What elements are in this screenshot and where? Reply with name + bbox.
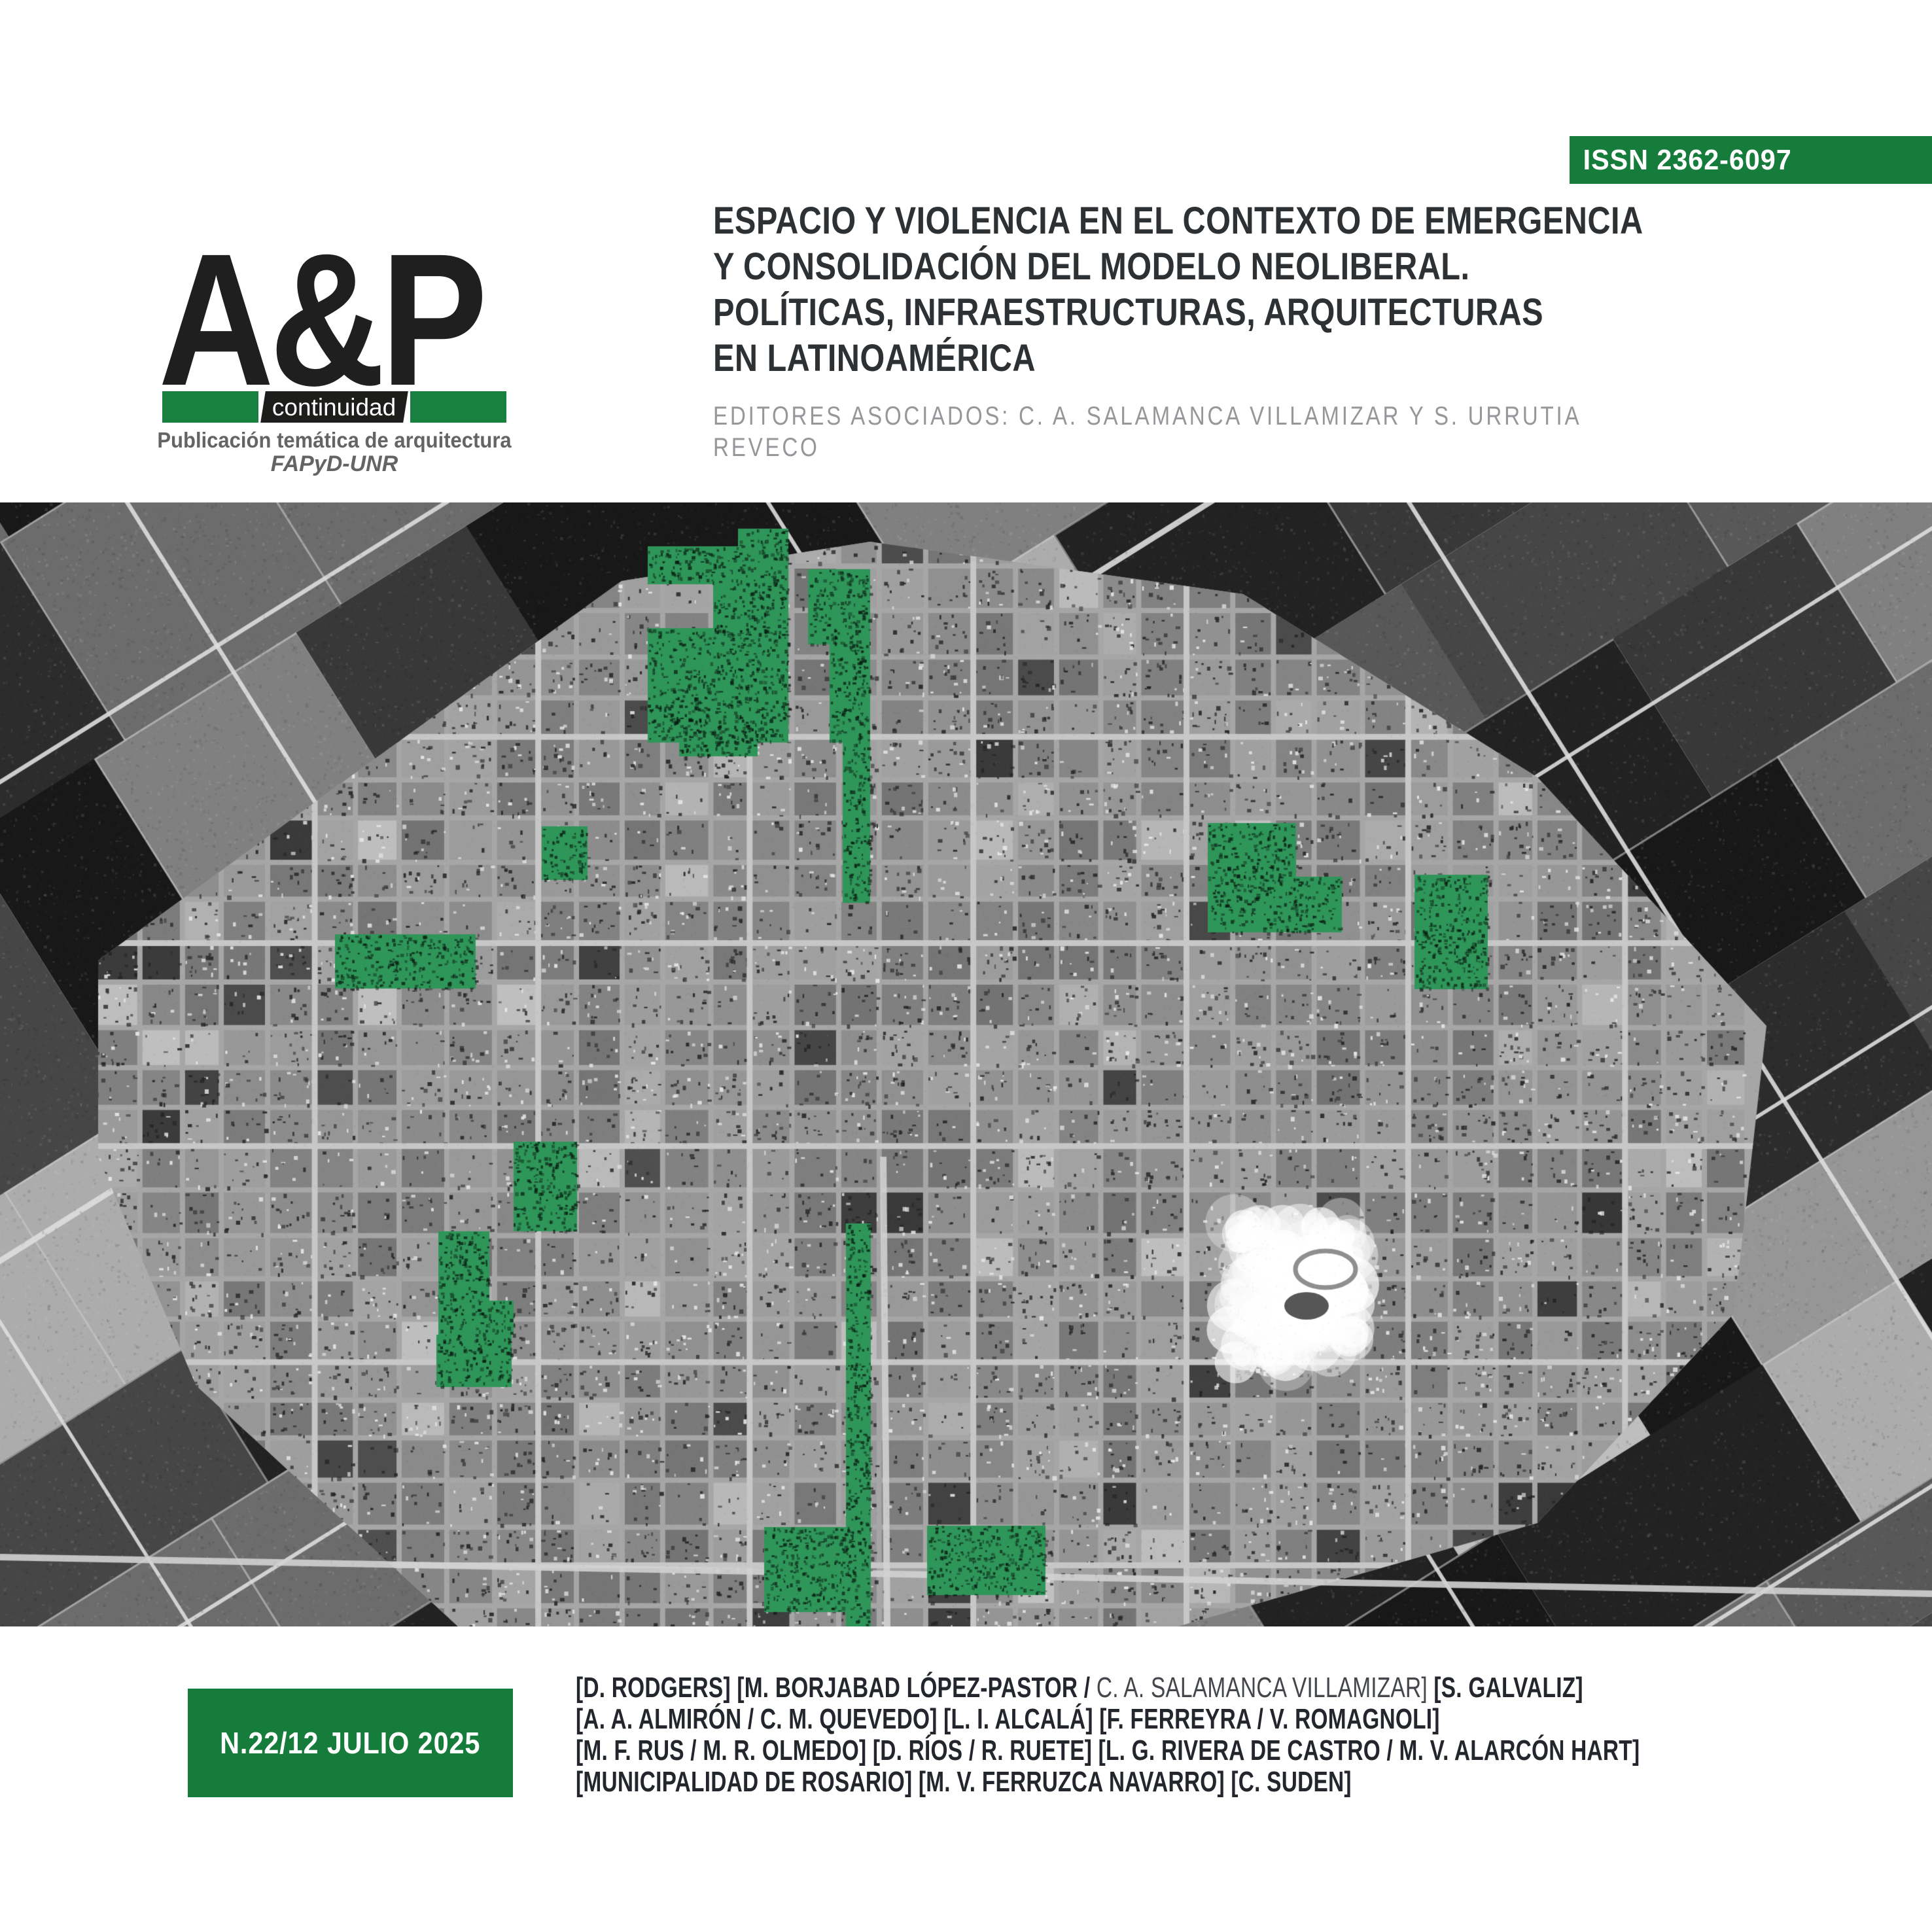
logo-continuidad-bar: continuidad [162, 391, 506, 423]
journal-cover: ISSN 2362-6097 A&P continuidad Publicaci… [0, 0, 1932, 1932]
issue-title: ESPACIO Y VIOLENCIA EN EL CONTEXTO DE EM… [713, 198, 1643, 381]
authors-line1-editor-name: C. A. SALAMANCA VILLAMIZAR] [1097, 1672, 1428, 1704]
logo-bar-green-right [410, 391, 506, 423]
authors-line: [MUNICIPALIDAD DE ROSARIO] [M. V. FERRUZ… [576, 1766, 1640, 1798]
authors-line: [D. RODGERS] [M. BORJABAD LÓPEZ-PASTOR /… [576, 1672, 1640, 1704]
issn-number: ISSN 2362-6097 [1570, 144, 1792, 177]
logo-institution: FAPyD-UNR [145, 451, 523, 477]
issue-title-line: POLÍTICAS, INFRAESTRUCTURAS, ARQUITECTUR… [713, 290, 1643, 336]
authors-line: [A. A. ALMIRÓN / C. M. QUEVEDO] [L. I. A… [576, 1704, 1640, 1735]
logo-bar-green-left [162, 391, 258, 423]
associated-editors-line: EDITORES ASOCIADOS: C. A. SALAMANCA VILL… [713, 400, 1581, 432]
issue-title-line: Y CONSOLIDACIÓN DEL MODELO NEOLIBERAL. [713, 244, 1643, 290]
logo-bar-label: continuidad [272, 395, 396, 419]
issue-number-date: N.22/12 JULIO 2025 [220, 1725, 480, 1761]
authors-line1-suffix: [S. GALVALIZ] [1428, 1672, 1583, 1704]
issue-number-box: N.22/12 JULIO 2025 [188, 1689, 513, 1797]
associated-editors-line: REVECO [713, 432, 1581, 463]
logo-tagline: Publicación temática de arquitectura [156, 428, 512, 453]
authors-line: [M. F. RUS / M. R. OLMEDO] [D. RÍOS / R.… [576, 1735, 1640, 1766]
logo-bar-black-segment: continuidad [260, 391, 408, 423]
issn-banner: ISSN 2362-6097 [1570, 136, 1932, 184]
associated-editors: EDITORES ASOCIADOS: C. A. SALAMANCA VILL… [713, 400, 1581, 463]
journal-logo-wordmark: A&P [158, 226, 459, 414]
authors-list: [D. RODGERS] [M. BORJABAD LÓPEZ-PASTOR /… [576, 1672, 1640, 1798]
aerial-map-image [0, 502, 1932, 1626]
authors-line1-prefix: [D. RODGERS] [M. BORJABAD LÓPEZ-PASTOR / [576, 1672, 1097, 1704]
issue-title-line: ESPACIO Y VIOLENCIA EN EL CONTEXTO DE EM… [713, 198, 1643, 244]
issue-title-line: EN LATINOAMÉRICA [713, 336, 1643, 381]
